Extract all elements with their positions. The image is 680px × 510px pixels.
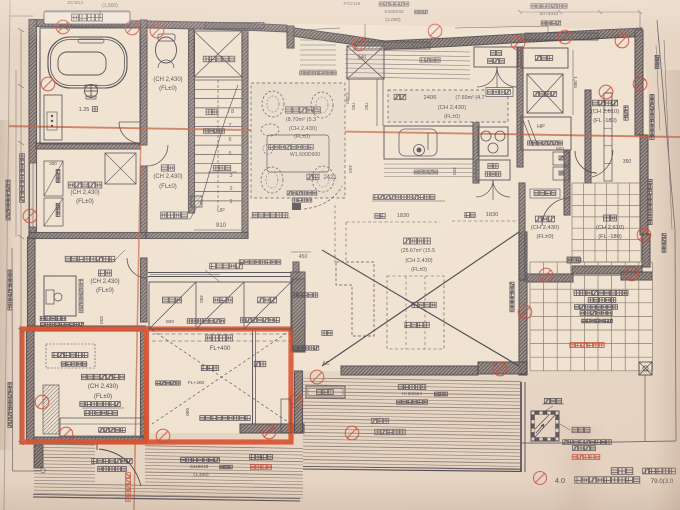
svg-text:940: 940: [358, 55, 367, 61]
svg-text:(FL±0): (FL±0): [536, 234, 553, 240]
svg-text:(CH 2,430): (CH 2,430): [438, 105, 466, 111]
svg-text:HH25624: HH25624: [402, 391, 423, 397]
svg-text:6: 6: [228, 137, 231, 143]
svg-text:(FL -180): (FL -180): [593, 118, 617, 124]
svg-text:400: 400: [347, 165, 353, 173]
svg-text:(CH 2,430): (CH 2,430): [70, 190, 99, 196]
svg-text:450: 450: [299, 254, 308, 260]
svg-text:(FL±0): (FL±0): [159, 184, 177, 190]
svg-text:(1,400): (1,400): [193, 472, 209, 478]
svg-text:1,365: 1,365: [573, 76, 578, 88]
svg-text:FL+400: FL+400: [188, 380, 205, 386]
svg-text:(7.69m² (4.7: (7.69m² (4.7: [455, 95, 484, 101]
svg-text:7: 7: [228, 123, 231, 129]
svg-text:350: 350: [623, 159, 632, 165]
svg-text:(CH 2,430): (CH 2,430): [153, 174, 182, 180]
svg-text:(CH 2,430): (CH 2,430): [531, 225, 559, 231]
svg-text:3: 3: [229, 173, 232, 179]
svg-text:(FL±0): (FL±0): [96, 288, 114, 294]
svg-text:W1,600D900: W1,600D900: [290, 152, 320, 158]
svg-text:(FL±0): (FL±0): [294, 134, 310, 140]
svg-text:2406: 2406: [424, 95, 437, 101]
svg-text:450: 450: [199, 295, 204, 303]
svg-text:UP: UP: [217, 208, 225, 214]
svg-text:200: 200: [98, 316, 104, 324]
svg-text:1830: 1830: [486, 212, 498, 218]
svg-text:(FL±0): (FL±0): [159, 86, 177, 92]
svg-text:FL+400: FL+400: [210, 346, 231, 352]
svg-text:1: 1: [229, 199, 232, 205]
svg-text:500: 500: [185, 408, 190, 416]
svg-text:HP: HP: [537, 124, 545, 130]
svg-text:1830: 1830: [397, 213, 409, 219]
svg-text:2: 2: [229, 186, 232, 192]
svg-text:(CH 2,430): (CH 2,430): [153, 77, 182, 83]
svg-text:300: 300: [49, 161, 57, 166]
svg-text:(FL -180): (FL -180): [598, 234, 622, 240]
svg-text:5: 5: [228, 151, 231, 157]
svg-text:2,300: 2,300: [345, 92, 350, 104]
svg-text:910: 910: [216, 223, 227, 229]
svg-text:500: 500: [556, 146, 564, 152]
svg-text:(CH 2,430): (CH 2,430): [90, 279, 119, 285]
svg-text:(25.67m² (15.5: (25.67m² (15.5: [401, 248, 435, 254]
svg-text:1.25: 1.25: [79, 107, 90, 113]
svg-text:(FL±0): (FL±0): [411, 267, 427, 273]
svg-text:(8.70m² (5.3: (8.70m² (5.3: [286, 117, 316, 123]
svg-text:750: 750: [364, 102, 369, 110]
svg-text:S119043: S119043: [190, 464, 209, 470]
svg-text:/ 8: / 8: [228, 109, 234, 115]
svg-text:(CH 2,430): (CH 2,430): [289, 126, 317, 132]
svg-text:(CH 2,610): (CH 2,610): [596, 225, 624, 231]
svg-text:800: 800: [166, 319, 174, 325]
svg-text:(FL±0): (FL±0): [444, 114, 460, 120]
svg-text:2421: 2421: [323, 175, 337, 181]
svg-text:(FL±0): (FL±0): [94, 393, 112, 400]
svg-text:(CH 2,610): (CH 2,610): [591, 109, 619, 115]
svg-text:(CH 2,430): (CH 2,430): [405, 258, 432, 264]
svg-text:700: 700: [351, 102, 356, 110]
svg-text:(FL±0): (FL±0): [76, 199, 94, 205]
svg-text:(CH 2,430): (CH 2,430): [88, 383, 118, 390]
